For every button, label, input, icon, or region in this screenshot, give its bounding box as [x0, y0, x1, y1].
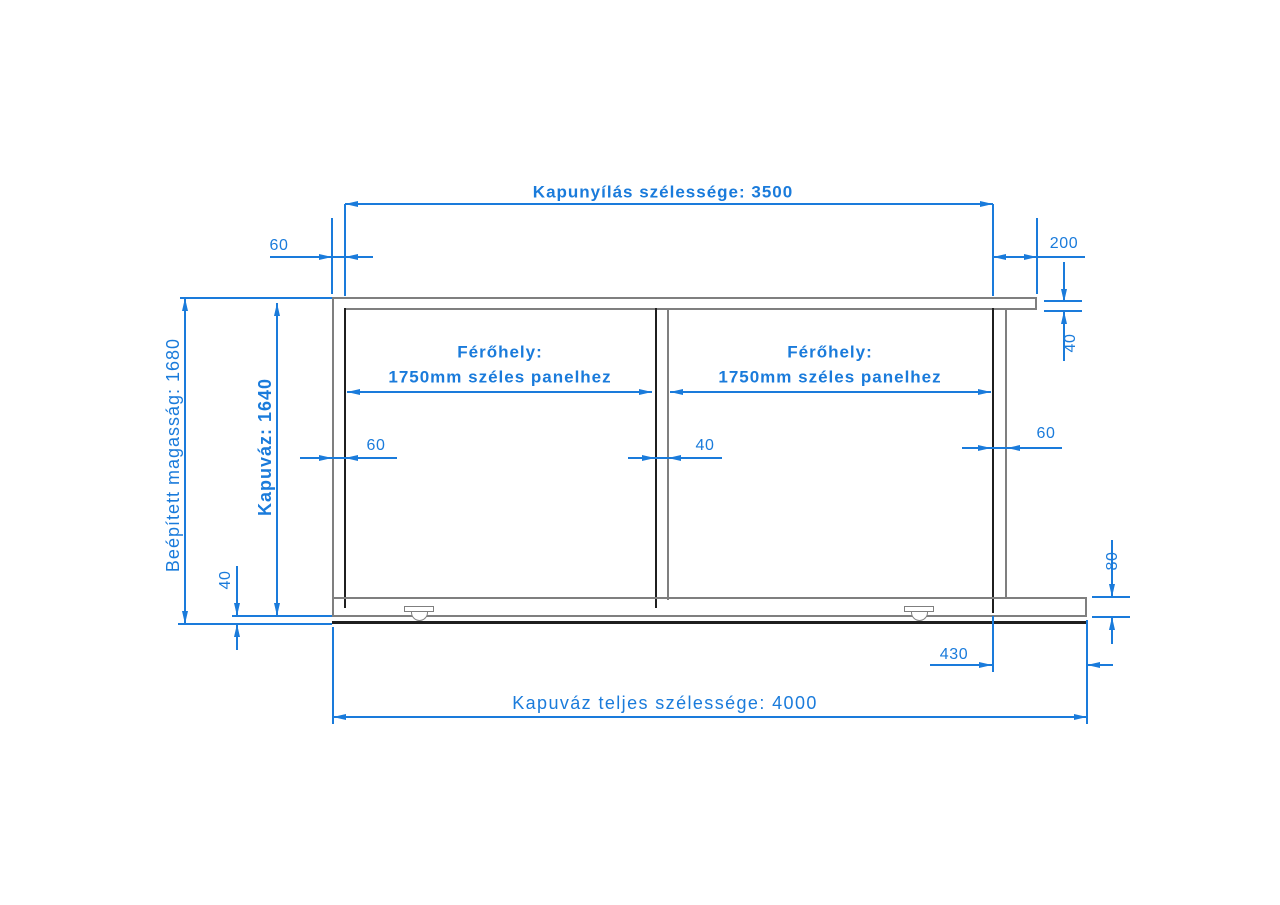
arrow-left-icon: [993, 254, 1006, 260]
ext-line: [178, 623, 332, 625]
dim-label-left-post: 60: [367, 438, 386, 454]
gate-technical-drawing: Kapunyílás szélessége: 3500 60 200 40 Fé…: [0, 0, 1280, 905]
dim-line-total-width: [333, 716, 1087, 718]
dim-label-middle-post: 40: [696, 438, 715, 454]
label-panel-space-1-line2: 1750mm széles panelhez: [388, 369, 611, 386]
arrow-left-icon: [1087, 662, 1100, 668]
dim-line-panel-space-1: [347, 391, 652, 393]
arrow-left-icon: [670, 389, 683, 395]
ext-line: [344, 204, 346, 296]
dim-label-bottom-rail-height: 80: [1105, 552, 1121, 571]
arrow-right-icon: [978, 389, 991, 395]
arrow-right-icon: [978, 445, 991, 451]
dim-label-rail-overhang: 430: [940, 647, 969, 663]
arrow-up-icon: [182, 298, 188, 311]
roller-wheel-right-icon: [911, 612, 928, 621]
ground-track-line: [332, 621, 1087, 624]
bottom-rail-end-cap: [1085, 597, 1087, 617]
arrow-left-icon: [345, 455, 358, 461]
dim-label-right-post: 60: [1037, 426, 1056, 442]
arrow-left-icon: [345, 201, 358, 207]
label-frame-height: Kapuváz: 1640: [256, 378, 274, 516]
dim-label-right-overhang: 200: [1050, 236, 1079, 252]
arrow-right-icon: [980, 201, 993, 207]
bottom-rail-top-line: [332, 597, 1087, 599]
top-rail-end-cap: [1035, 297, 1037, 310]
arrow-right-icon: [979, 662, 992, 668]
arrow-right-icon: [319, 455, 332, 461]
arrow-left-icon: [345, 254, 358, 260]
label-total-width: Kapuváz teljes szélessége: 4000: [512, 694, 818, 712]
arrow-right-icon: [639, 389, 652, 395]
arrow-right-icon: [642, 455, 655, 461]
label-panel-space-1-line1: Férőhely:: [457, 344, 543, 361]
top-rail-bottom-line: [345, 308, 1037, 310]
label-installed-height: Beépített magasság: 1680: [164, 338, 182, 572]
dim-line-installed-height: [184, 298, 186, 624]
right-post-right-line: [1005, 308, 1007, 598]
arrow-down-icon: [234, 603, 240, 616]
dim-line-panel-space-2: [670, 391, 991, 393]
arrow-right-icon: [319, 254, 332, 260]
arrow-right-icon: [1074, 714, 1087, 720]
top-rail-top-line: [332, 297, 1037, 299]
dim-line-opening-width: [345, 203, 993, 205]
arrow-left-icon: [347, 389, 360, 395]
label-panel-space-2-line1: Férőhely:: [787, 344, 873, 361]
arrow-left-icon: [333, 714, 346, 720]
dim-label-left-post-top: 60: [270, 238, 289, 254]
label-panel-space-2-line2: 1750mm széles panelhez: [718, 369, 941, 386]
ext-line: [992, 204, 994, 296]
arrow-up-icon: [1061, 311, 1067, 324]
dim-label-bottom-clearance: 40: [218, 571, 234, 590]
arrow-down-icon: [1109, 584, 1115, 597]
bottom-rail-bottom-line: [332, 615, 1087, 617]
arrow-left-icon: [668, 455, 681, 461]
arrow-up-icon: [234, 624, 240, 637]
middle-post-right-line: [667, 308, 669, 600]
arrow-down-icon: [182, 611, 188, 624]
arrow-left-icon: [1007, 445, 1020, 451]
arrow-right-icon: [1024, 254, 1037, 260]
ext-line: [1086, 620, 1088, 724]
ext-line: [992, 616, 994, 672]
dim-line-right-overhang: [993, 256, 1085, 258]
dim-line-frame-height: [276, 303, 278, 616]
right-post-left-line: [992, 308, 994, 613]
ext-line: [332, 627, 334, 724]
ext-line: [180, 297, 332, 299]
dim-label-rail-thickness: 40: [1063, 334, 1079, 353]
arrow-up-icon: [1109, 617, 1115, 630]
roller-wheel-left-icon: [411, 612, 428, 621]
ext-line: [232, 615, 332, 617]
arrow-up-icon: [274, 303, 280, 316]
label-opening-width: Kapunyílás szélessége: 3500: [533, 184, 793, 201]
arrow-down-icon: [1061, 289, 1067, 302]
arrow-down-icon: [274, 603, 280, 616]
